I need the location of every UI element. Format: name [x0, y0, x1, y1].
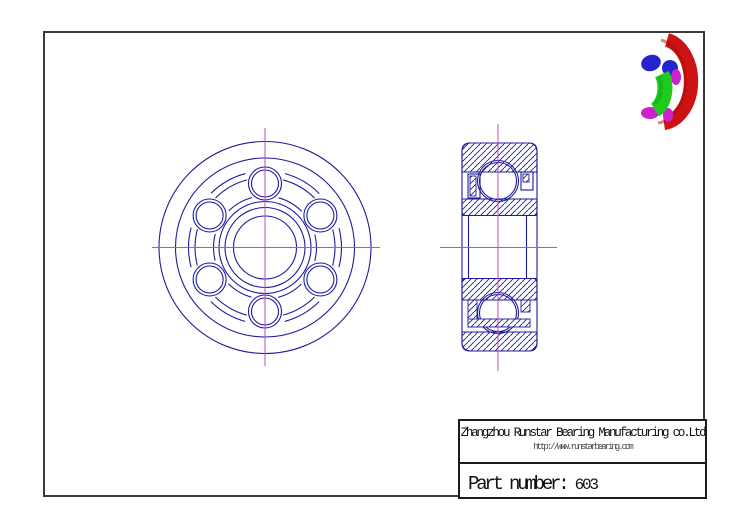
render-ball — [639, 52, 663, 73]
title-block-part-row: Part number: 603 — [460, 473, 705, 495]
cage-section-bottom — [468, 300, 530, 327]
bearing-3d-render — [639, 40, 691, 123]
drawing-sheet: Zhangzhou Runstar Bearing Manufacturing … — [0, 0, 750, 530]
part-number-label: Part number: — [468, 473, 575, 495]
title-block-header: Zhangzhou Runstar Bearing Manufacturing … — [460, 426, 705, 464]
website-url: http://www.runstarbearing.com — [460, 442, 705, 452]
part-number-line: Part number: 603 — [468, 473, 705, 495]
title-block: Zhangzhou Runstar Bearing Manufacturing … — [458, 419, 707, 499]
part-number-value: 603 — [575, 476, 597, 494]
company-name: Zhangzhou Runstar Bearing Manufacturing … — [460, 426, 705, 440]
